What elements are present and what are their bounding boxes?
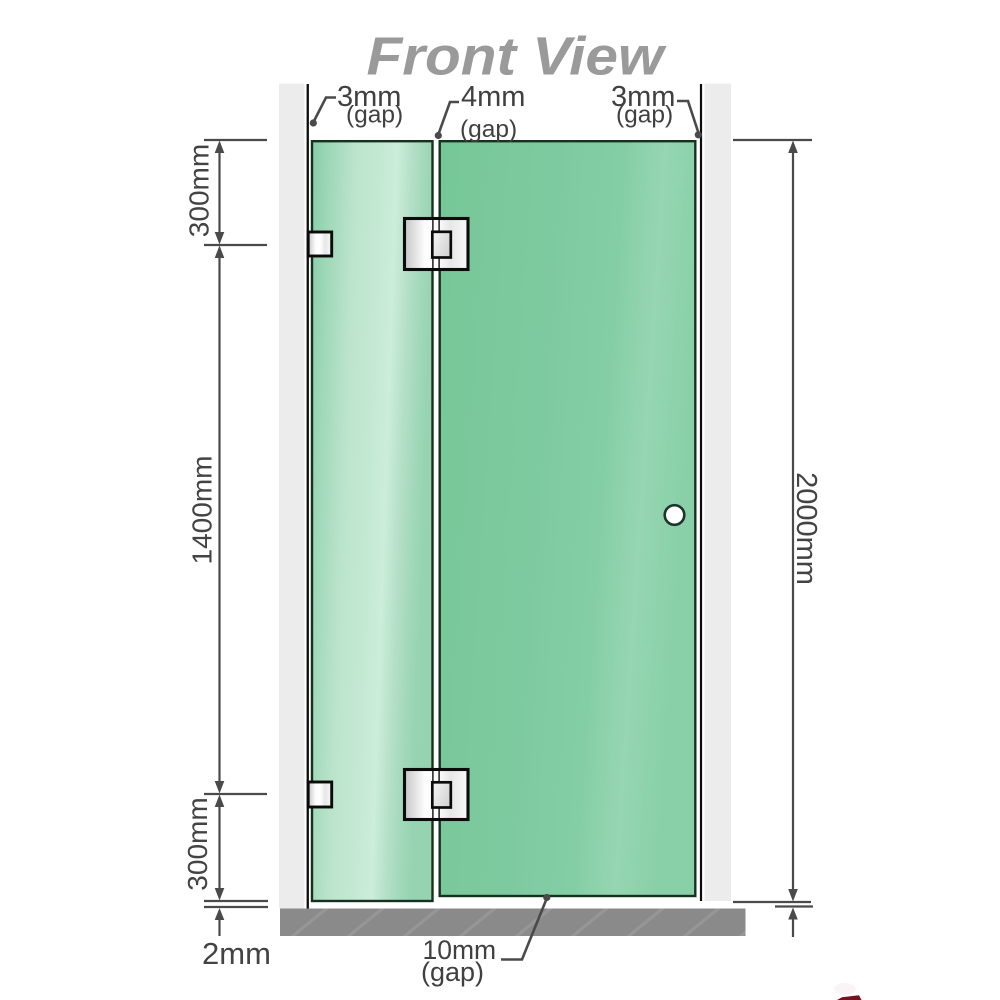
svg-text:Front View: Front View — [367, 27, 667, 87]
svg-text:300mm: 300mm — [184, 144, 215, 237]
svg-text:(gap): (gap) — [421, 957, 484, 987]
svg-text:2000mm: 2000mm — [790, 472, 822, 585]
svg-text:(gap): (gap) — [460, 116, 517, 143]
svg-text:4mm: 4mm — [461, 81, 525, 113]
svg-text:2mm: 2mm — [202, 936, 271, 971]
svg-text:(gap): (gap) — [616, 102, 673, 129]
svg-text:300mm: 300mm — [182, 797, 213, 890]
svg-text:1400mm: 1400mm — [187, 456, 218, 565]
svg-text:(gap): (gap) — [346, 102, 403, 129]
